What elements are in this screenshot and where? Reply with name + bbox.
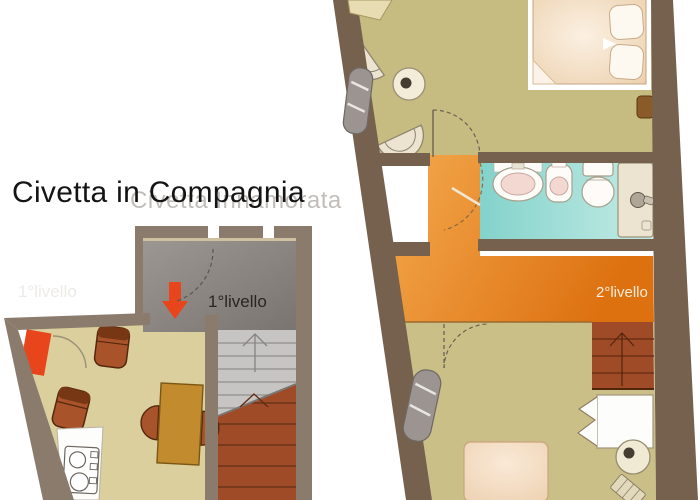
side-table-lower <box>616 440 650 474</box>
shower <box>618 163 655 237</box>
toilet <box>582 162 614 207</box>
pillow-1 <box>609 4 644 40</box>
level2-label: 2°livello <box>596 284 648 301</box>
dining-chair-top <box>94 325 131 369</box>
level2-right-wall <box>651 0 698 500</box>
floorplan-canvas: 1°livello 1°livello <box>0 0 700 500</box>
pillow-2 <box>609 44 644 80</box>
stairs-left-wall <box>205 315 218 500</box>
level1-staircase <box>218 330 296 500</box>
sink <box>493 162 543 201</box>
bed-upper <box>528 0 651 90</box>
shower-head-icon <box>631 193 646 208</box>
nightstand <box>637 96 654 118</box>
level1-plan: 1°livello 1°livello <box>4 226 312 500</box>
bed-lower <box>464 442 548 500</box>
staircase-level2 <box>592 322 654 390</box>
bathroom-top-wall <box>478 152 653 163</box>
entry-left-wall <box>135 241 143 319</box>
dining-table <box>157 383 203 465</box>
bidet <box>546 162 572 202</box>
level1-right-wall <box>296 226 312 500</box>
floorplan-svg: 1°livello 1°livello <box>0 0 700 500</box>
level2-plan: 2°livello <box>333 0 698 500</box>
upper-split-wall <box>370 153 430 166</box>
white-room-bottom-wall <box>390 242 430 256</box>
side-table-upper <box>393 68 425 100</box>
level1-entry-floor <box>143 240 296 332</box>
top-wall-sill <box>143 238 296 241</box>
bathroom-bottom-wall <box>478 239 655 251</box>
level1-label: 1°livello <box>208 292 267 311</box>
level1-watermark: 1°livello <box>18 282 77 301</box>
